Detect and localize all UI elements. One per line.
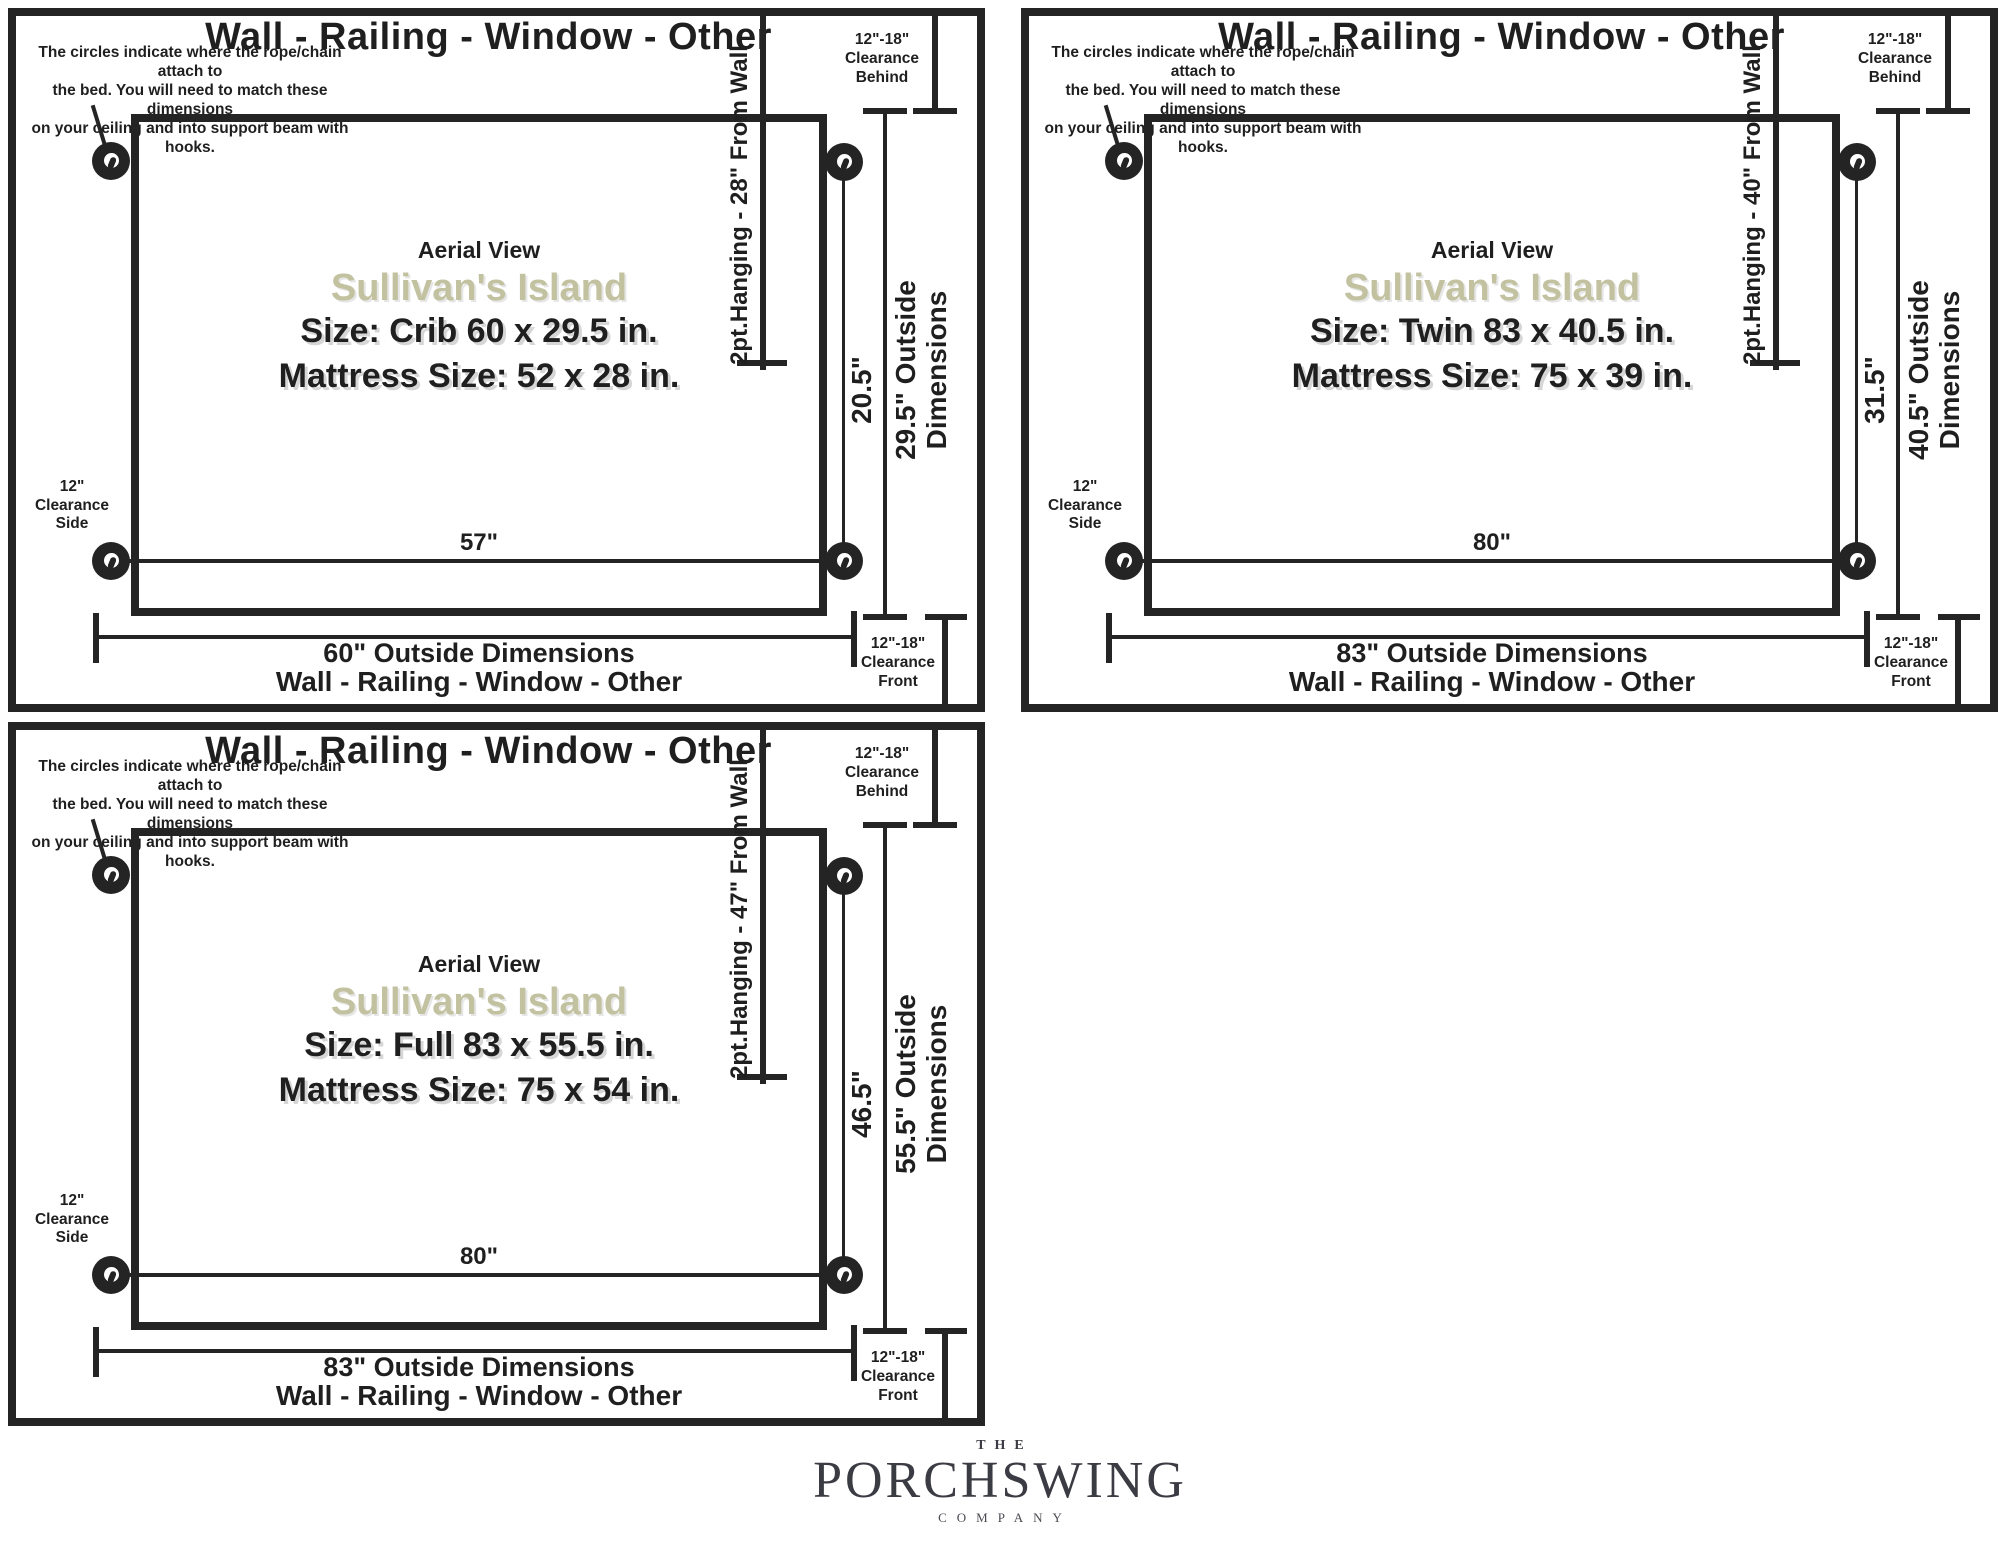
clearance-front-dim-tick — [1938, 614, 1980, 620]
clearance-behind-line: Clearance — [817, 49, 947, 68]
outside-width-dim-label: 83" Outside Dimensions — [149, 1352, 809, 1382]
note-line: The circles indicate where the rope/chai… — [20, 757, 360, 795]
clearance-behind-label: 12"-18" Clearance Behind — [1830, 30, 1960, 87]
outside-depth-label-line: Dimensions — [921, 210, 952, 530]
clearance-side-line: 12" — [16, 478, 128, 497]
outside-depth-dim-label: 55.5" Outside Dimensions — [890, 924, 952, 1244]
attachment-point-bottom-right-icon — [825, 542, 863, 580]
aerial-view-label: Aerial View — [149, 233, 809, 267]
note-line: The circles indicate where the rope/chai… — [20, 43, 360, 81]
note-line: The circles indicate where the rope/chai… — [1033, 43, 1373, 81]
bed-info-block: Aerial View Sullivan's Island Size: Twin… — [1162, 233, 1822, 399]
hanging-width-dim-line — [111, 559, 844, 563]
outside-depth-label-line: 40.5" Outside — [1903, 210, 1934, 530]
bed-size-text: Size: Crib 60 x 29.5 in. — [149, 309, 809, 353]
outside-width-dim-label: 60" Outside Dimensions — [149, 638, 809, 668]
dimension-sheet: Wall - Railing - Window - Other The circ… — [0, 0, 2000, 1545]
aerial-view-label: Aerial View — [1162, 233, 1822, 267]
mattress-size-text: Mattress Size: 52 x 28 in. — [149, 353, 809, 399]
outside-depth-label-line: Dimensions — [1934, 210, 1965, 530]
clearance-side-line: Side — [1029, 515, 1141, 534]
attachment-point-top-right-icon — [1838, 143, 1876, 181]
clearance-front-dim-tick — [925, 1328, 967, 1334]
clearance-side-line: 12" — [16, 1192, 128, 1211]
bed-diagram-panel-crib: Wall - Railing - Window - Other The circ… — [8, 8, 985, 712]
outside-width-dim-label: 83" Outside Dimensions — [1162, 638, 1822, 668]
outside-depth-bottom-tick — [863, 614, 907, 620]
clearance-side-label: 12" Clearance Side — [16, 478, 128, 534]
bed-diagram-panel-full: Wall - Railing - Window - Other The circ… — [8, 722, 985, 1426]
hanging-depth-dim-label: 20.5" — [847, 325, 877, 455]
hanging-depth-dim-label: 46.5" — [847, 1039, 877, 1169]
outside-depth-bottom-tick — [863, 1328, 907, 1334]
clearance-behind-dim-tick — [1926, 108, 1970, 114]
attachment-point-bottom-left-icon — [1105, 542, 1143, 580]
clearance-behind-label: 12"-18" Clearance Behind — [817, 744, 947, 801]
attachment-point-bottom-left-icon — [92, 542, 130, 580]
clearance-behind-line: 12"-18" — [817, 744, 947, 763]
clearance-front-dim-line — [942, 617, 948, 704]
attachment-point-bottom-left-icon — [92, 1256, 130, 1294]
hanging-depth-dim-line — [842, 876, 845, 1275]
clearance-side-line: Side — [16, 1229, 128, 1248]
attachment-point-top-left-icon — [92, 142, 130, 180]
clearance-behind-line: Behind — [817, 68, 947, 87]
outside-depth-bottom-tick — [1876, 614, 1920, 620]
product-name: Sullivan's Island — [1162, 267, 1822, 309]
hanging-depth-dim-line — [842, 162, 845, 561]
attachment-point-top-right-icon — [825, 857, 863, 895]
clearance-behind-line: Behind — [817, 782, 947, 801]
clearance-behind-dim-tick — [913, 822, 957, 828]
hanging-from-wall-dim-line — [1773, 16, 1779, 370]
clearance-behind-label: 12"-18" Clearance Behind — [817, 30, 947, 87]
clearance-side-line: 12" — [1029, 478, 1141, 497]
product-name: Sullivan's Island — [149, 981, 809, 1023]
hanging-from-wall-dim-label: 2pt.Hanging - 28" From Wall — [726, 40, 754, 370]
bed-size-text: Size: Full 83 x 55.5 in. — [149, 1023, 809, 1067]
bed-info-block: Aerial View Sullivan's Island Size: Full… — [149, 947, 809, 1113]
porchswing-company-logo: THE PORCHSWING COMPANY — [0, 1438, 2000, 1526]
clearance-front-dim-tick — [925, 614, 967, 620]
attachment-point-bottom-right-icon — [825, 1256, 863, 1294]
bed-size-text: Size: Twin 83 x 40.5 in. — [1162, 309, 1822, 353]
hanging-depth-dim-label: 31.5" — [1860, 325, 1890, 455]
clearance-side-line: Clearance — [16, 1211, 128, 1230]
clearance-behind-dim-tick — [913, 108, 957, 114]
attachment-point-top-right-icon — [825, 143, 863, 181]
hanging-width-dim-line — [111, 1273, 844, 1277]
hanging-width-dim-line — [1124, 559, 1857, 563]
mattress-size-text: Mattress Size: 75 x 39 in. — [1162, 353, 1822, 399]
attachment-point-bottom-right-icon — [1838, 542, 1876, 580]
clearance-side-line: Clearance — [1029, 497, 1141, 516]
logo-company: COMPANY — [0, 1510, 2000, 1526]
bed-info-block: Aerial View Sullivan's Island Size: Crib… — [149, 233, 809, 399]
hanging-from-wall-dim-label: 2pt.Hanging - 47" From Wall — [726, 754, 754, 1084]
hanging-width-dim-label: 80" — [329, 1244, 629, 1270]
hanging-width-dim-label: 57" — [329, 530, 629, 556]
hanging-from-wall-dim-line — [760, 730, 766, 1084]
hanging-depth-dim-line — [1855, 162, 1858, 561]
clearance-behind-dim-line — [932, 16, 938, 110]
wall-label-bottom: Wall - Railing - Window - Other — [149, 1381, 809, 1411]
clearance-behind-dim-line — [1945, 16, 1951, 110]
clearance-side-line: Side — [16, 515, 128, 534]
clearance-behind-line: Behind — [1830, 68, 1960, 87]
hanging-width-dim-label: 80" — [1342, 530, 1642, 556]
outside-depth-dim-label: 40.5" Outside Dimensions — [1903, 210, 1965, 530]
attachment-point-top-left-icon — [92, 856, 130, 894]
wall-label-bottom: Wall - Railing - Window - Other — [1162, 667, 1822, 697]
aerial-view-label: Aerial View — [149, 947, 809, 981]
clearance-front-dim-line — [1955, 617, 1961, 704]
clearance-behind-line: Clearance — [1830, 49, 1960, 68]
outside-depth-dim-line — [883, 826, 887, 1331]
clearance-behind-line: 12"-18" — [817, 30, 947, 49]
wall-label-bottom: Wall - Railing - Window - Other — [149, 667, 809, 697]
outside-depth-label-line: Dimensions — [921, 924, 952, 1244]
clearance-behind-dim-line — [932, 730, 938, 824]
clearance-side-label: 12" Clearance Side — [16, 1192, 128, 1248]
outside-depth-label-line: 55.5" Outside — [890, 924, 921, 1244]
hanging-from-wall-dim-line — [760, 16, 766, 370]
outside-depth-dim-line — [1896, 112, 1900, 617]
clearance-behind-line: 12"-18" — [1830, 30, 1960, 49]
logo-name: PORCHSWING — [0, 1455, 2000, 1507]
product-name: Sullivan's Island — [149, 267, 809, 309]
hanging-from-wall-dim-label: 2pt.Hanging - 40" From Wall — [1739, 40, 1767, 370]
clearance-behind-line: Clearance — [817, 763, 947, 782]
clearance-front-dim-line — [942, 1331, 948, 1418]
clearance-side-line: Clearance — [16, 497, 128, 516]
outside-depth-dim-label: 29.5" Outside Dimensions — [890, 210, 952, 530]
mattress-size-text: Mattress Size: 75 x 54 in. — [149, 1067, 809, 1113]
outside-depth-label-line: 29.5" Outside — [890, 210, 921, 530]
clearance-side-label: 12" Clearance Side — [1029, 478, 1141, 534]
outside-depth-dim-line — [883, 112, 887, 617]
bed-diagram-panel-twin: Wall - Railing - Window - Other The circ… — [1021, 8, 1998, 712]
attachment-point-top-left-icon — [1105, 142, 1143, 180]
